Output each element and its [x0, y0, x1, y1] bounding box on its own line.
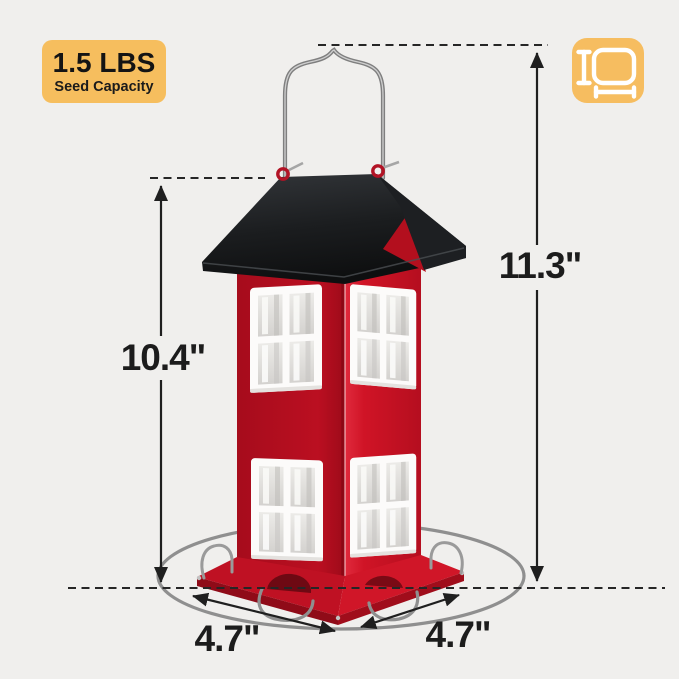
- window-upper-right: [350, 284, 416, 390]
- window-lower-right: [350, 453, 416, 557]
- window-lower-left: [251, 458, 323, 561]
- roof: [202, 174, 466, 284]
- feeder-body: [237, 264, 421, 578]
- badge-capacity-caption: Seed Capacity: [54, 80, 153, 95]
- label-base-width-left: 4.7": [195, 618, 260, 660]
- hanger-wire: [285, 50, 383, 182]
- label-house-height: 10.4": [121, 337, 206, 379]
- dimensions-icon-glyph: [572, 38, 644, 103]
- product-infographic: 1.5 LBS Seed Capacity 11.3" 10.4" 4.7" 4…: [0, 0, 679, 679]
- seed-capacity-badge: 1.5 LBS Seed Capacity: [42, 40, 166, 103]
- label-base-width-right: 4.7": [426, 614, 491, 656]
- badge-capacity-value: 1.5 LBS: [53, 49, 156, 77]
- dimensions-measure-icon: [572, 38, 644, 103]
- window-upper-left: [250, 284, 322, 393]
- label-overall-height: 11.3": [499, 245, 582, 287]
